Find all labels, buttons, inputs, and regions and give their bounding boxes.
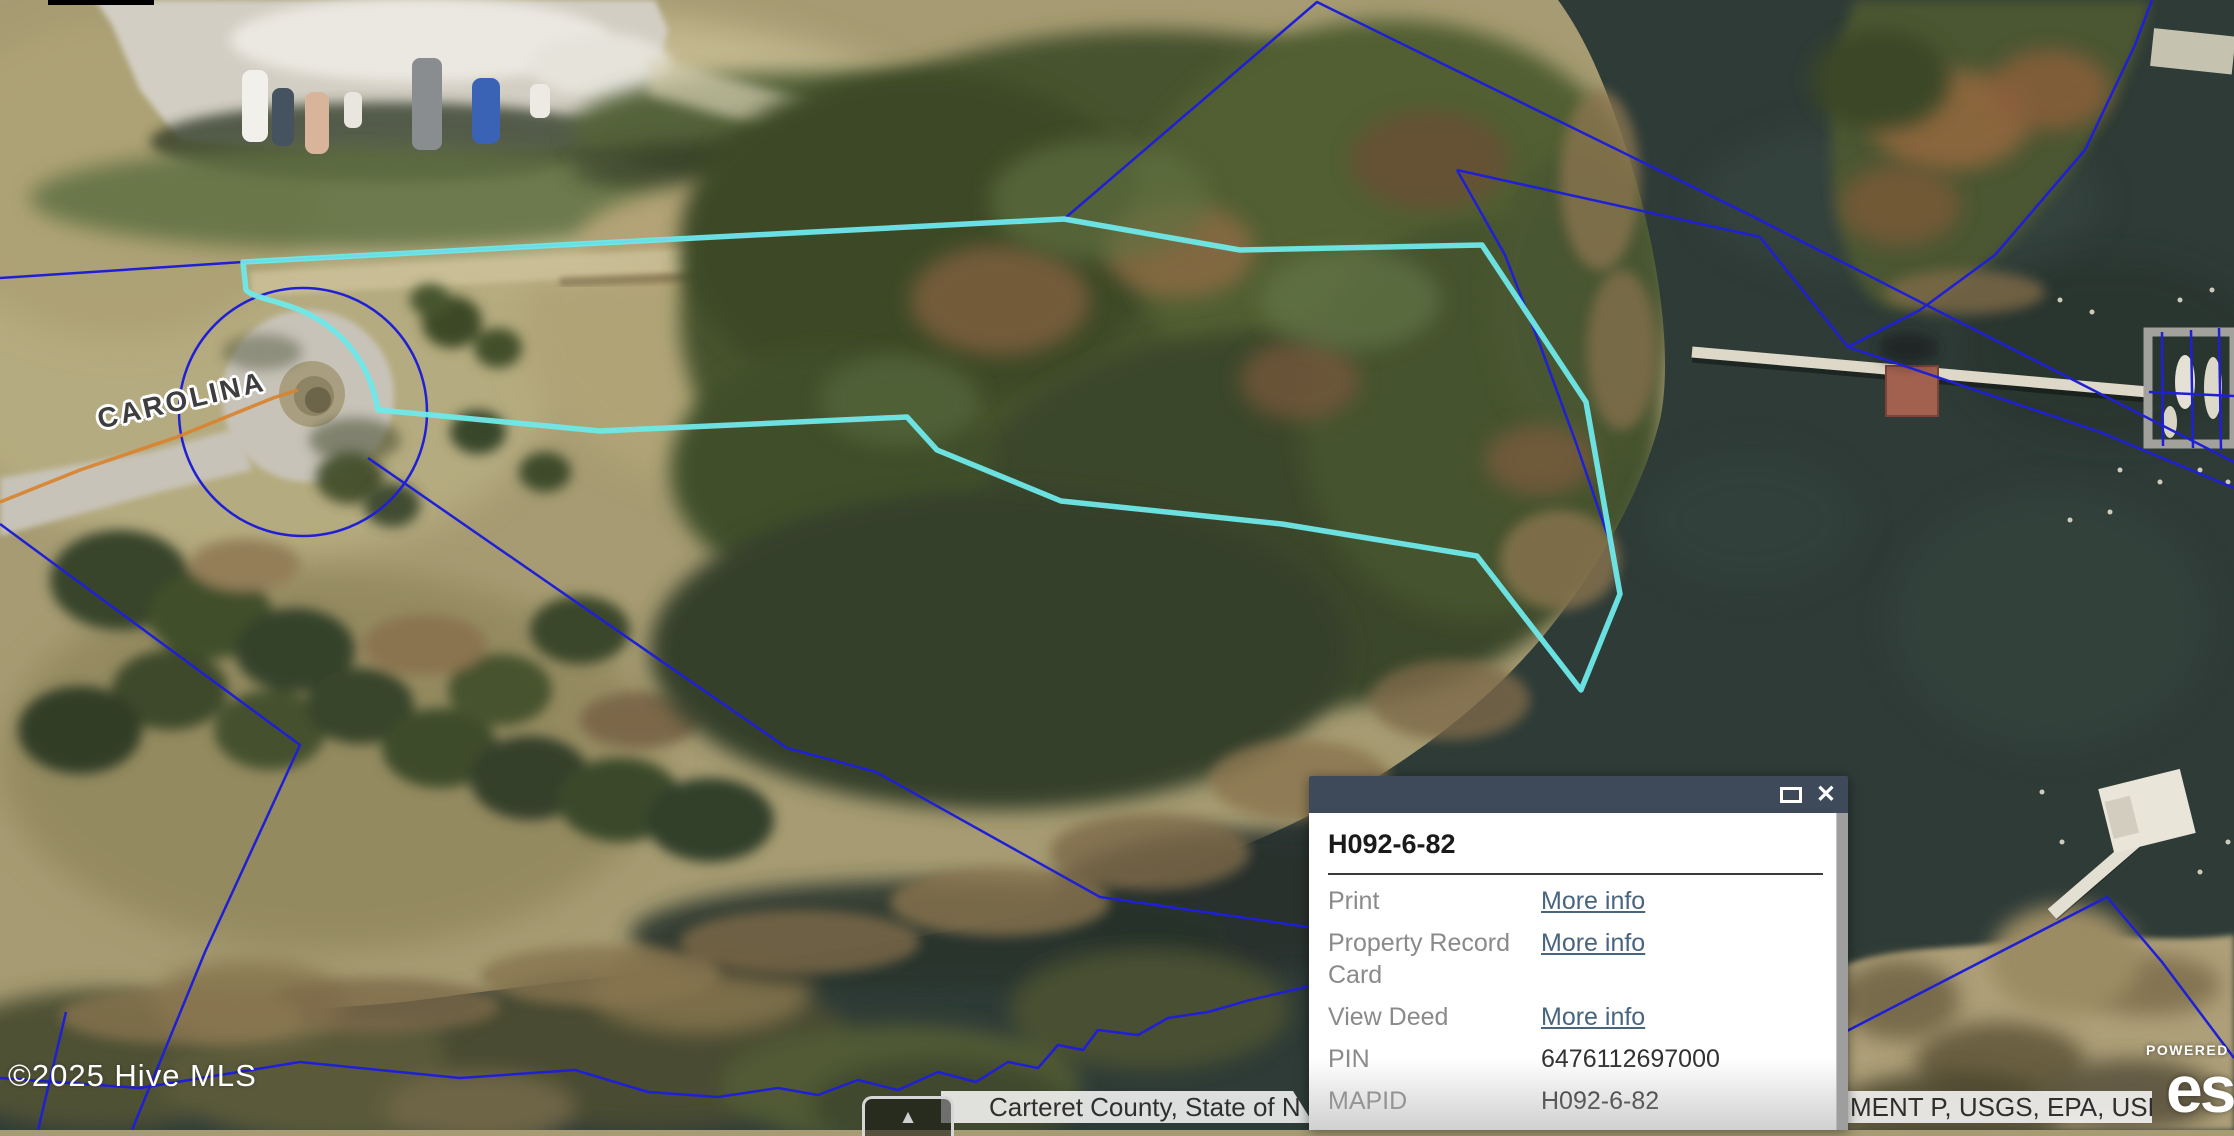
popup-header[interactable]: ✕ bbox=[1309, 776, 1848, 813]
row-label: MAPID bbox=[1328, 1085, 1541, 1117]
chevron-up-icon: ▲ bbox=[899, 1107, 918, 1129]
popup-title-divider bbox=[1328, 873, 1823, 875]
copyright-watermark: ©2025 Hive MLS bbox=[8, 1058, 257, 1094]
popup-body: H092-6-82 Print More info Property Recor… bbox=[1309, 813, 1837, 1130]
pin-value: 6476112697000 bbox=[1541, 1043, 1720, 1075]
more-info-link[interactable]: More info bbox=[1541, 1001, 1645, 1033]
popup-row-print: Print More info bbox=[1328, 885, 1823, 917]
close-icon[interactable]: ✕ bbox=[1816, 778, 1836, 811]
popup-row-view-deed: View Deed More info bbox=[1328, 1001, 1823, 1033]
more-info-link[interactable]: More info bbox=[1541, 885, 1645, 917]
attribution-text-right: MENT P, USGS, EPA, USDA bbox=[1848, 1091, 2152, 1123]
row-label: View Deed bbox=[1328, 1001, 1541, 1033]
attribution-expander-button[interactable]: ▲ bbox=[862, 1096, 954, 1136]
more-info-link[interactable]: More info bbox=[1541, 927, 1645, 991]
esri-logo-text: esri bbox=[2166, 1052, 2234, 1126]
row-label: PIN bbox=[1328, 1043, 1541, 1075]
aerial-basemap[interactable] bbox=[0, 0, 2234, 1130]
esri-logo: esri bbox=[2166, 1052, 2234, 1130]
attribution-text-left: Carteret County, State of N bbox=[941, 1091, 1313, 1123]
popup-title: H092-6-82 bbox=[1328, 829, 1823, 860]
feature-popup: ✕ H092-6-82 Print More info Property Rec… bbox=[1309, 776, 1848, 1130]
popup-scrollbar[interactable] bbox=[1836, 813, 1848, 1130]
row-label: Print bbox=[1328, 885, 1541, 917]
row-label: Property Record Card bbox=[1328, 927, 1541, 991]
popup-row-property-record-card: Property Record Card More info bbox=[1328, 927, 1823, 991]
popup-row-pin: PIN 6476112697000 bbox=[1328, 1043, 1823, 1075]
popup-row-mapid: MAPID H092-6-82 bbox=[1328, 1085, 1823, 1117]
maximize-icon[interactable] bbox=[1780, 787, 1802, 803]
mapid-value: H092-6-82 bbox=[1541, 1085, 1659, 1117]
top-edge-artifact-bar bbox=[48, 0, 154, 5]
